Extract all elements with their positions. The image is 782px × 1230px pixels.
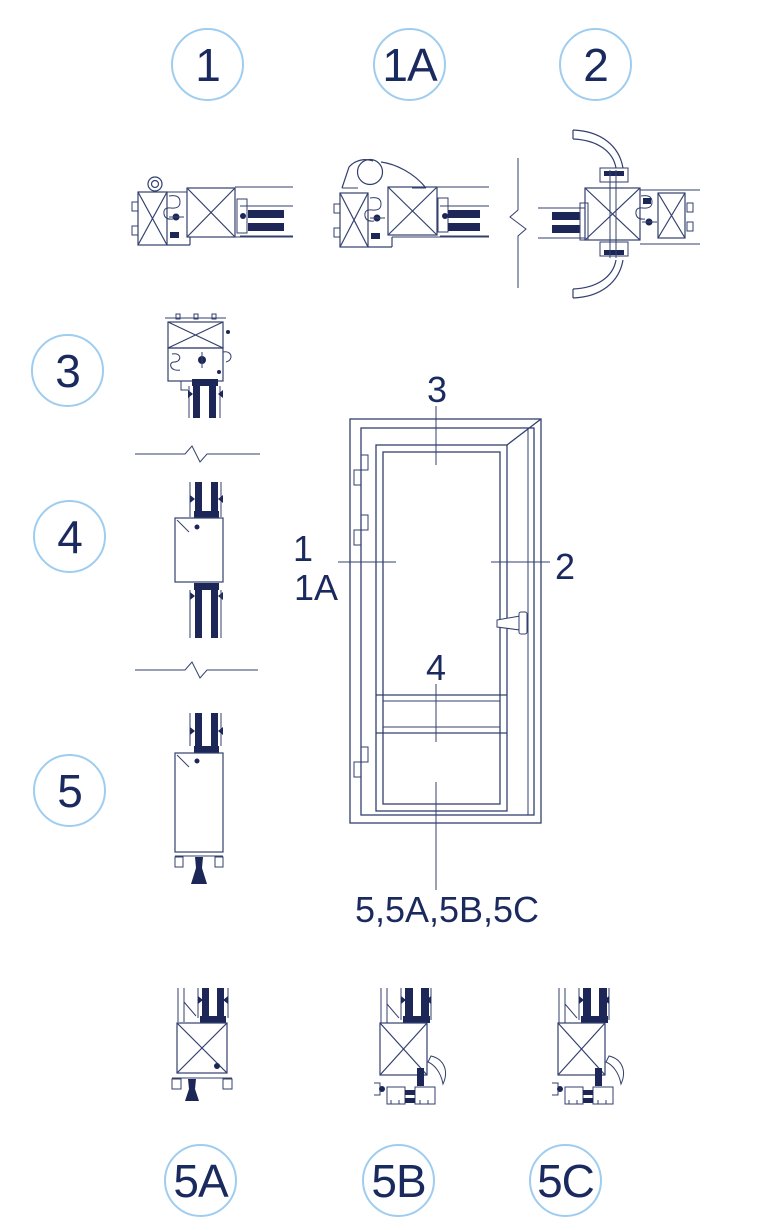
callout-5A: 5A [164, 1144, 237, 1217]
door-annotation-left-secondary: 1A [294, 570, 338, 606]
section-2-drawing [538, 130, 700, 298]
section-4-drawing [175, 482, 223, 638]
callout-1-label: 1 [195, 38, 220, 92]
door-annotation-right: 2 [555, 549, 575, 585]
door-annotation-bottom: 5,5A,5B,5C [355, 892, 539, 928]
callout-2-label: 2 [583, 38, 608, 92]
door-hinge-top [354, 455, 368, 485]
section-5a-drawing [172, 988, 232, 1101]
callout-3: 3 [31, 334, 104, 407]
section-5-drawing [175, 713, 223, 884]
door-hinge-bottom [354, 747, 368, 777]
callout-5B-label: 5B [371, 1154, 425, 1208]
section-1-drawing [132, 177, 293, 245]
door-handle [497, 612, 527, 634]
break-line-lower [135, 662, 258, 678]
callout-4-label: 4 [57, 510, 82, 564]
drawing-layer [0, 0, 782, 1230]
callout-1: 1 [171, 28, 244, 101]
callout-4: 4 [33, 500, 106, 573]
callout-1A-label: 1A [382, 38, 436, 92]
callout-2: 2 [559, 28, 632, 101]
blueprint-sheet: 1 1A 2 3 4 5 5A 5B 5C 3 1 1A 2 4 5,5A,5B… [0, 0, 782, 1230]
callout-5C-label: 5C [537, 1154, 594, 1208]
callout-1A: 1A [373, 28, 446, 101]
callout-5C: 5C [529, 1144, 602, 1217]
door-annotation-middle: 4 [426, 650, 446, 686]
callout-3-label: 3 [55, 344, 80, 398]
door-hinge-middle [354, 515, 368, 545]
section-5c-drawing [552, 988, 624, 1104]
callout-5B: 5B [362, 1144, 435, 1217]
break-line-vertical [510, 158, 526, 288]
break-line-upper [135, 446, 260, 462]
section-1a-drawing [334, 160, 489, 248]
section-3-drawing [165, 314, 231, 418]
callout-5: 5 [33, 754, 106, 827]
callout-5A-label: 5A [173, 1154, 227, 1208]
door-annotation-left-primary: 1 [293, 531, 313, 567]
door-annotation-top: 3 [427, 372, 447, 408]
callout-5-label: 5 [57, 764, 82, 818]
section-5b-drawing [374, 988, 446, 1104]
